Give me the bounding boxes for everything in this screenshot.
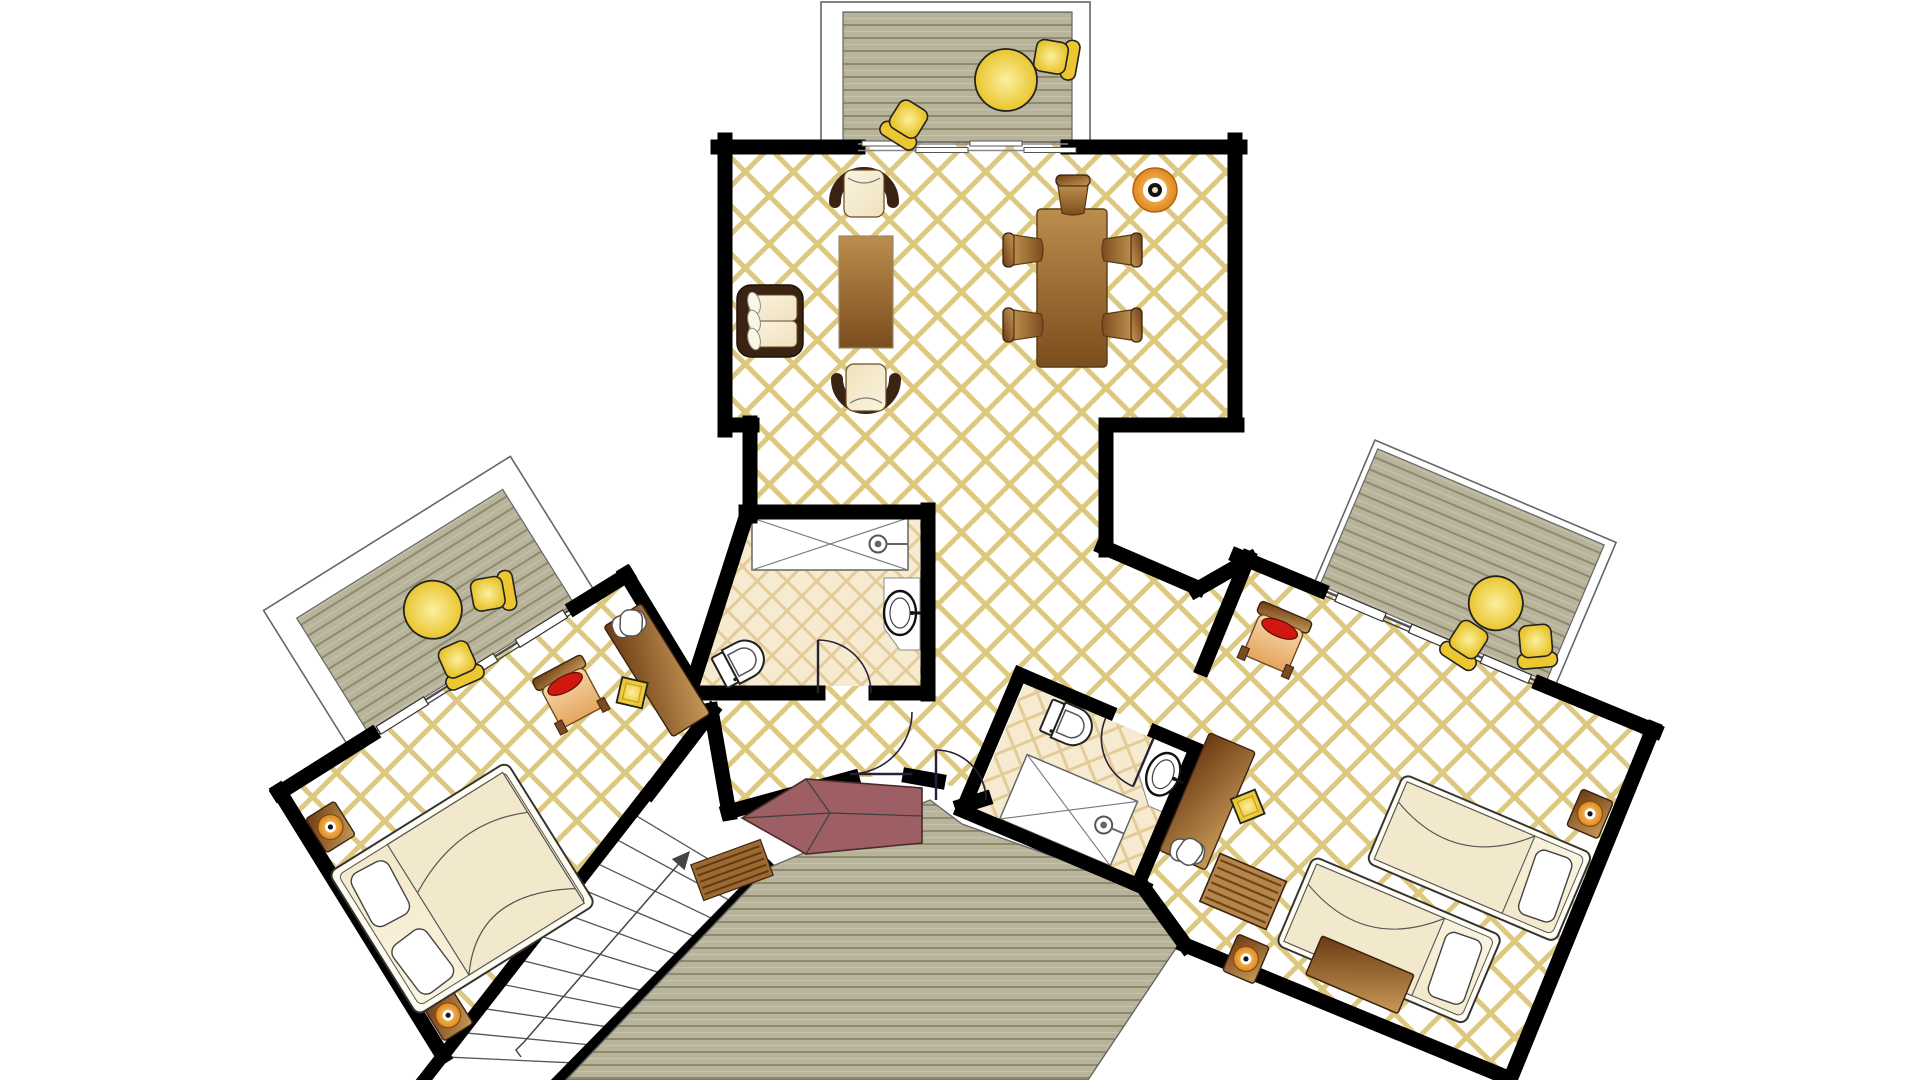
coffee-table <box>839 236 893 348</box>
bathroom1-shower-head-dot <box>875 541 882 548</box>
dining-chair <box>1003 233 1043 267</box>
sofa <box>737 285 803 357</box>
wall-segment <box>962 799 984 806</box>
decor-bowl <box>1133 168 1177 212</box>
armchair <box>837 364 895 411</box>
sliding-door-panel <box>916 148 968 153</box>
sliding-door-panel <box>1024 148 1076 153</box>
wall-segment <box>910 776 938 781</box>
balcony-table <box>975 49 1037 111</box>
dining-table <box>1037 209 1107 367</box>
main-floor <box>687 140 1247 812</box>
floor-plan <box>0 0 1920 1080</box>
floor-plan-canvas <box>0 0 1920 1080</box>
dining-chair <box>1102 308 1142 342</box>
dining-chair <box>1003 308 1043 342</box>
sliding-door-panel <box>970 141 1022 146</box>
dining-chair <box>1056 175 1090 215</box>
armchair <box>835 170 893 217</box>
balcony-chair <box>1514 623 1558 669</box>
dining-chair <box>1102 233 1142 267</box>
